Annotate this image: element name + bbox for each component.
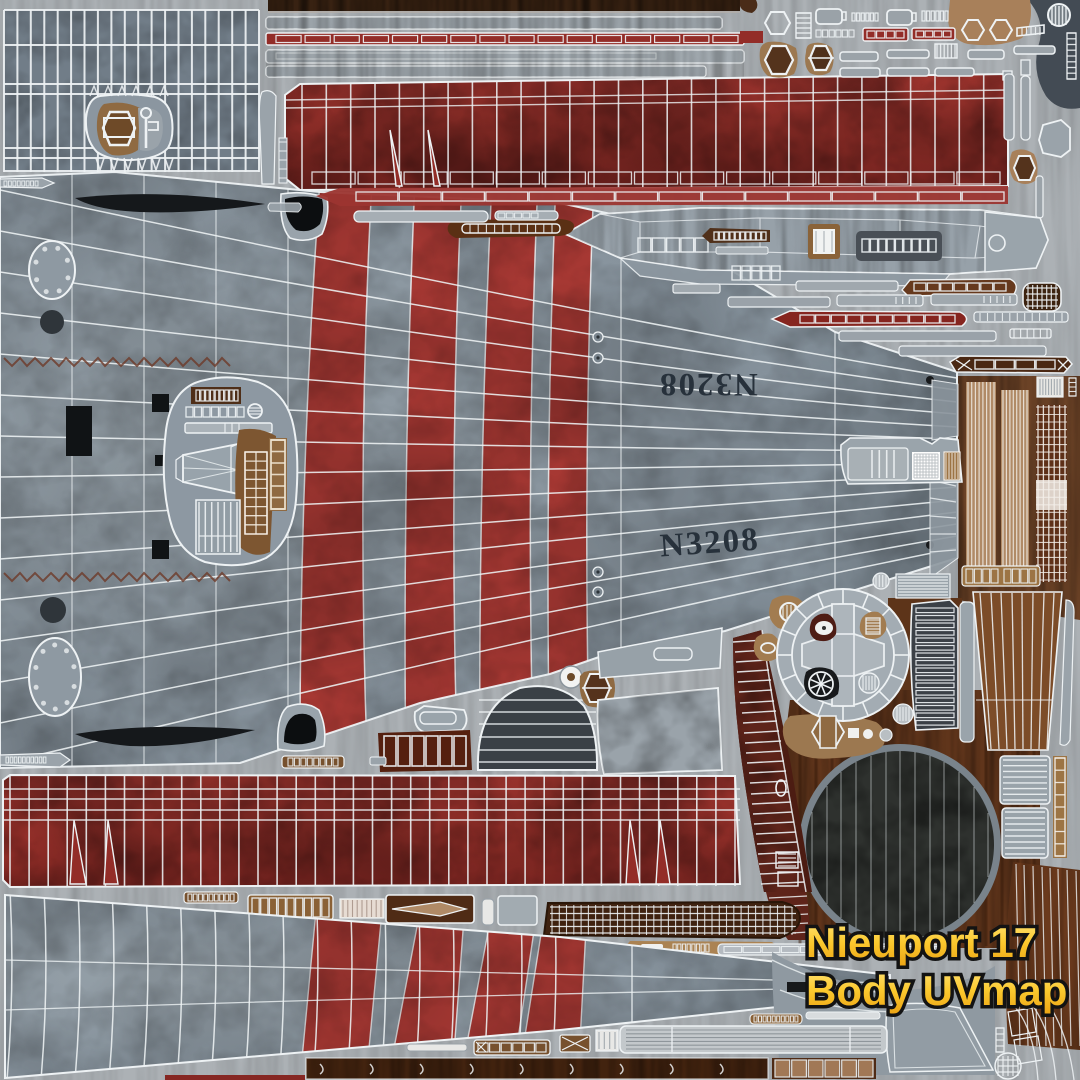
svg-text:Body UVmap: Body UVmap: [806, 967, 1067, 1014]
svg-text:N3208: N3208: [658, 366, 758, 402]
svg-text:N3208: N3208: [659, 522, 761, 565]
svg-text:Nieuport 17: Nieuport 17: [806, 919, 1037, 966]
